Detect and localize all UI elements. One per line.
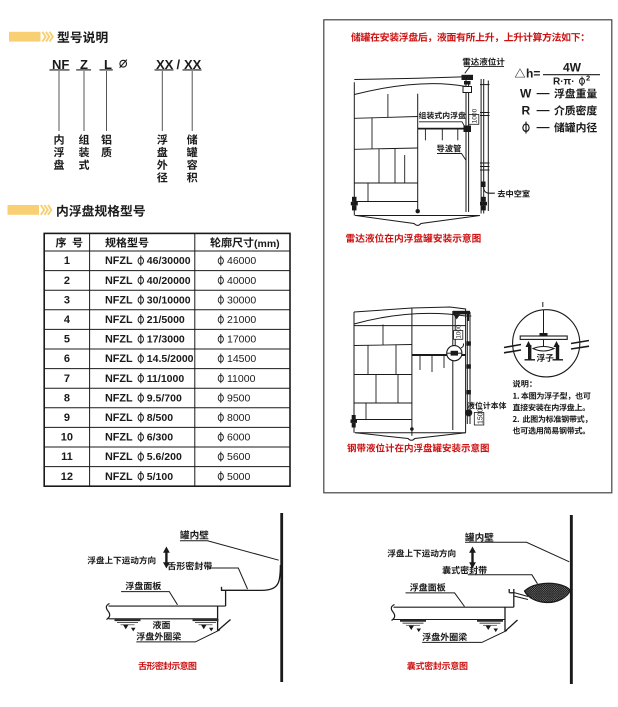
- svg-text:W: W: [520, 87, 532, 101]
- svg-text:5600: 5600: [227, 451, 251, 463]
- svg-text:2: 2: [586, 74, 590, 83]
- svg-text:(mm): (mm): [254, 238, 280, 250]
- svg-text:14.5/2000: 14.5/2000: [147, 353, 194, 365]
- svg-text:9500: 9500: [227, 392, 251, 404]
- svg-text:4: 4: [64, 314, 71, 326]
- svg-text:9: 9: [64, 412, 70, 424]
- svg-text:h=: h=: [526, 67, 540, 81]
- svg-text:8000: 8000: [227, 412, 251, 424]
- svg-text:4W: 4W: [563, 61, 582, 75]
- svg-text:8: 8: [64, 392, 70, 404]
- svg-text:5000: 5000: [227, 471, 251, 483]
- svg-text:1000: 1000: [471, 108, 478, 123]
- svg-text:1000: 1000: [456, 324, 463, 339]
- svg-text:NFZL: NFZL: [105, 451, 133, 463]
- svg-text:NFZL: NFZL: [105, 392, 133, 404]
- svg-text:6: 6: [64, 353, 70, 365]
- svg-text:12: 12: [61, 471, 73, 483]
- svg-text:3: 3: [64, 294, 70, 306]
- svg-text:11000: 11000: [227, 373, 256, 385]
- svg-text:21000: 21000: [227, 314, 256, 326]
- svg-text:8/500: 8/500: [147, 412, 173, 424]
- svg-text:11: 11: [61, 451, 73, 463]
- svg-text:R: R: [522, 104, 531, 118]
- svg-text:14500: 14500: [227, 353, 256, 365]
- svg-text:1: 1: [64, 255, 70, 267]
- svg-text:NFZL: NFZL: [105, 373, 133, 385]
- svg-text:7: 7: [64, 373, 70, 385]
- svg-text:NFZL: NFZL: [105, 334, 133, 346]
- svg-text:30/10000: 30/10000: [147, 294, 191, 306]
- svg-text:R·π·: R·π·: [553, 77, 575, 88]
- svg-text:46/30000: 46/30000: [147, 255, 191, 267]
- svg-text:NFZL: NFZL: [105, 412, 133, 424]
- svg-text:40000: 40000: [227, 275, 256, 287]
- svg-text:46000: 46000: [227, 255, 256, 267]
- svg-text:30000: 30000: [227, 294, 256, 306]
- svg-text:NFZL: NFZL: [105, 294, 133, 306]
- svg-text:2: 2: [64, 275, 70, 287]
- svg-text:11/1000: 11/1000: [147, 373, 185, 385]
- svg-text:6/300: 6/300: [147, 432, 173, 444]
- svg-text:NFZL: NFZL: [105, 432, 133, 444]
- svg-text:5.6/200: 5.6/200: [147, 451, 182, 463]
- svg-text:NFZL: NFZL: [105, 353, 133, 365]
- svg-text:5/100: 5/100: [147, 471, 173, 483]
- svg-text:17000: 17000: [227, 334, 256, 346]
- svg-text:17/3000: 17/3000: [147, 334, 185, 346]
- svg-text:NFZL: NFZL: [105, 314, 133, 326]
- svg-text:6000: 6000: [227, 432, 251, 444]
- svg-text:21/5000: 21/5000: [147, 314, 185, 326]
- svg-text:NFZL: NFZL: [105, 471, 133, 483]
- svg-text:5: 5: [64, 334, 70, 346]
- svg-text:NFZL: NFZL: [105, 255, 133, 267]
- svg-text:10: 10: [61, 432, 73, 444]
- svg-text:NFZL: NFZL: [105, 275, 133, 287]
- svg-text:/: /: [177, 57, 181, 72]
- svg-text:9.5/700: 9.5/700: [147, 392, 182, 404]
- svg-text:1500: 1500: [477, 408, 484, 424]
- svg-text:40/20000: 40/20000: [147, 275, 191, 287]
